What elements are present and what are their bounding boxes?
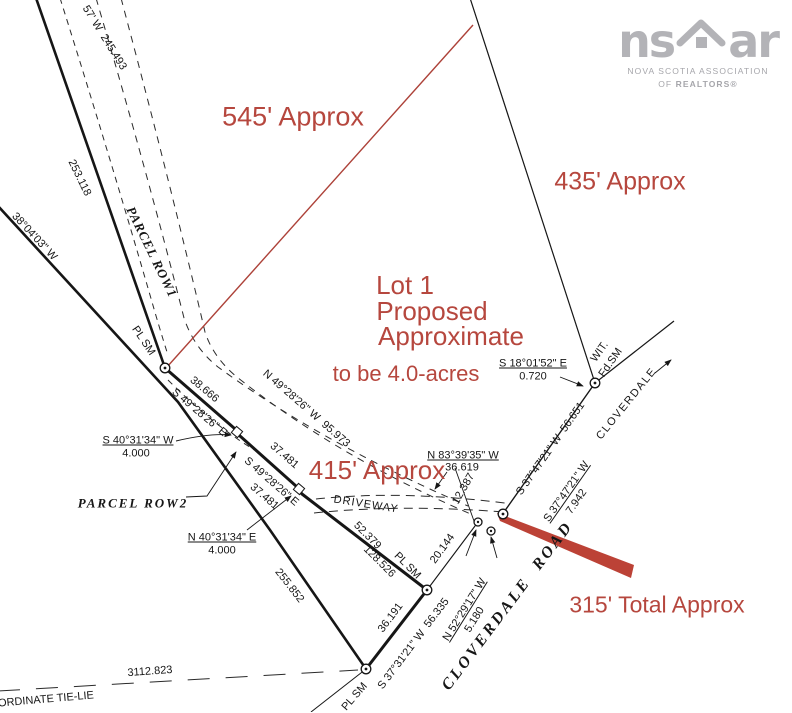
boundary-lines <box>0 0 427 669</box>
nsar-subtitle-line1: NOVA SCOTIA ASSOCIATION <box>610 66 786 77</box>
red-315-wedge <box>497 513 634 578</box>
nsar-wordmark: ns ar <box>610 16 786 64</box>
survey-drawing <box>0 0 792 712</box>
nsar-logo: ns ar NOVA SCOTIA ASSOCIATION OF REALTOR… <box>610 16 786 89</box>
thin-lines <box>311 0 674 712</box>
nsar-word-left: ns <box>618 18 674 64</box>
nsar-word-right: ar <box>728 18 778 64</box>
nsar-subtitle-line2: OF REALTORS® <box>610 79 786 90</box>
red-annotation-lines <box>167 25 634 578</box>
survey-plan-page: 57' W 245.493253.11838°04'03" WPARCEL RO… <box>0 0 792 712</box>
red-545-line <box>167 25 473 367</box>
survey-monuments <box>160 363 600 674</box>
house-icon <box>676 16 726 62</box>
